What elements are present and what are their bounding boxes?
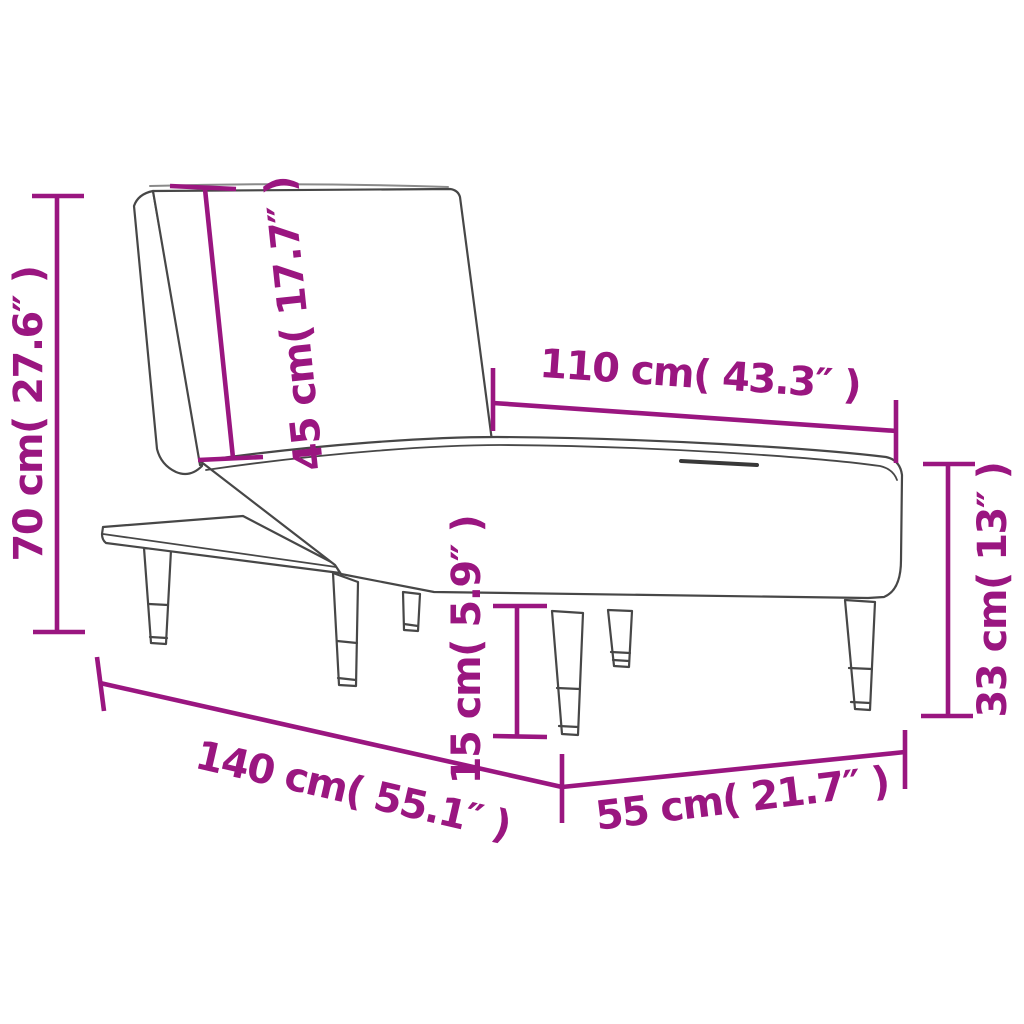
leg-shelf-left <box>144 548 171 644</box>
leg-shelf-left-foot-line <box>150 637 167 638</box>
dim-tick-bottom <box>493 736 547 737</box>
leg-front-left <box>333 573 358 686</box>
leg-rear-middle <box>608 610 632 667</box>
leg-front-middle-foot-line <box>559 726 578 727</box>
dimension-leg-height-lines <box>493 606 547 737</box>
leg-right-cap-line <box>849 668 872 669</box>
leg-right-foot-line <box>851 702 870 703</box>
label-seat-height: 33 cm( 13″ ) <box>970 463 1016 718</box>
leg-right <box>845 600 875 710</box>
dim-tick-bottom <box>198 457 263 460</box>
leg-rear-middle-foot-line <box>613 660 629 661</box>
label-total-height: 70 cm( 27.6″ ) <box>6 267 52 562</box>
leg-rear-middle-cap-line <box>611 652 630 653</box>
leg-front-middle <box>552 611 583 735</box>
label-seat-length: 110 cm( 43.3″ ) <box>538 341 862 409</box>
dimension-seat-height-lines <box>921 464 975 716</box>
dimension-diagram: 70 cm( 27.6″ ) 45 cm( 17.7″ ) 110 cm( 43… <box>0 0 1024 1024</box>
leg-shelf-left-cap-line <box>149 604 168 605</box>
label-leg-height: 15 cm( 5.9″ ) <box>444 516 490 785</box>
dim-tick-top <box>170 186 236 189</box>
leg-front-middle-cap-line <box>557 688 580 689</box>
diagram-canvas: 70 cm( 27.6″ ) 45 cm( 17.7″ ) 110 cm( 43… <box>0 0 1024 1024</box>
